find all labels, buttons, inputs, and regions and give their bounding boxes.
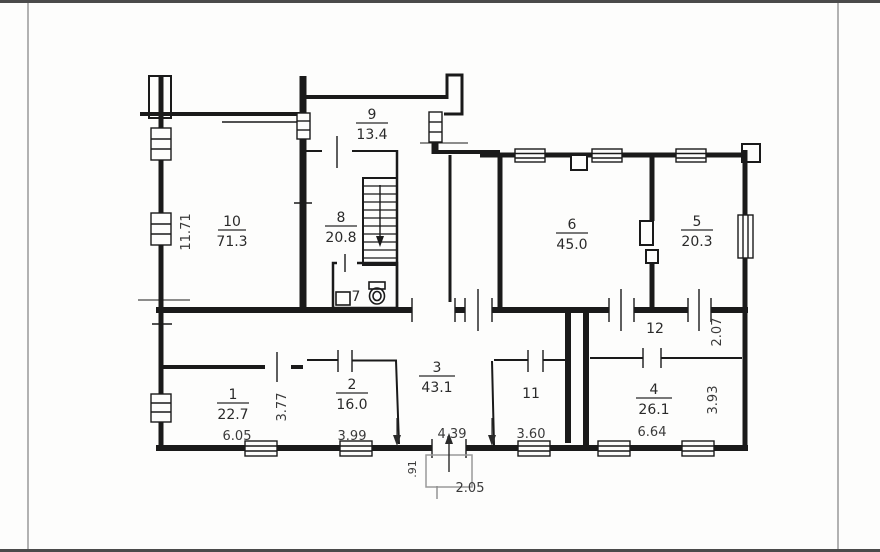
dim-room1-width: 6.05: [223, 429, 252, 444]
dim-room12-depth: 2.07: [710, 318, 725, 347]
window-room9-side: [429, 112, 442, 142]
window-right-1: [738, 215, 753, 258]
window-chimney: [297, 113, 310, 139]
room-9-number: 9: [368, 107, 377, 123]
window-top-2: [592, 149, 622, 162]
dim-room4-depth: 3.93: [706, 386, 721, 415]
room-2-number: 2: [348, 377, 357, 393]
floor-plan-page: 10 71.3 9 13.4 8 20.8 7 6 45.0 5 20.3 12…: [0, 0, 880, 552]
window-bottom-5: [682, 441, 714, 456]
wall-pilasters: [149, 76, 760, 162]
room6-top-notch: [571, 155, 587, 170]
dim-porch-depth: .91: [406, 460, 419, 478]
divider-jog-upper: [640, 221, 653, 245]
room-11-number: 11: [522, 386, 540, 402]
dim-entry-width: 4.39: [438, 427, 467, 442]
room-label-bars: [217, 123, 713, 403]
sink-icon: [336, 292, 350, 305]
toilet-icon: [369, 282, 385, 304]
room-8-number: 8: [337, 210, 346, 226]
window-bottom-3: [518, 441, 550, 456]
room-6-area: 45.0: [556, 237, 587, 253]
scan-artifacts: [0, 0, 880, 552]
dim-room1-depth: 3.77: [275, 393, 290, 422]
room-1-number: 1: [229, 387, 238, 403]
dim-left-height: 11.71: [179, 213, 194, 250]
room-2-area: 16.0: [336, 397, 367, 413]
window-bottom-4: [598, 441, 630, 456]
room-5-area: 20.3: [681, 234, 712, 250]
room-1-area: 22.7: [217, 407, 248, 423]
divider-jog-lower: [646, 250, 658, 263]
dim-room4-width: 6.64: [638, 425, 667, 440]
floor-plan: 10 71.3 9 13.4 8 20.8 7 6 45.0 5 20.3 12…: [0, 0, 880, 552]
toilet-room: [333, 263, 397, 308]
room-4-number: 4: [650, 382, 659, 398]
window-left-3: [151, 394, 171, 422]
room-10-number: 10: [223, 214, 241, 230]
room-6-number: 6: [568, 217, 577, 233]
dim-porch-width: 2.05: [456, 481, 485, 496]
wall-bump-room9: [444, 75, 462, 114]
window-left-2: [151, 213, 171, 245]
stairs-icon: [363, 178, 397, 265]
window-left-1: [151, 128, 171, 160]
room-7-number: 7: [352, 289, 361, 305]
window-top-3: [676, 149, 706, 162]
room-3-area: 43.1: [421, 380, 452, 396]
dim-room11-width: 3.60: [517, 427, 546, 442]
room-12-number: 12: [646, 321, 664, 337]
room-4-area: 26.1: [638, 402, 669, 418]
room-10-area: 71.3: [216, 234, 247, 250]
room-8-area: 20.8: [325, 230, 356, 246]
room-9-area: 13.4: [356, 127, 387, 143]
dim-room2-width: 3.99: [338, 429, 367, 444]
room-5-number: 5: [693, 214, 702, 230]
window-top-1: [515, 149, 545, 162]
room-3-number: 3: [433, 360, 442, 376]
